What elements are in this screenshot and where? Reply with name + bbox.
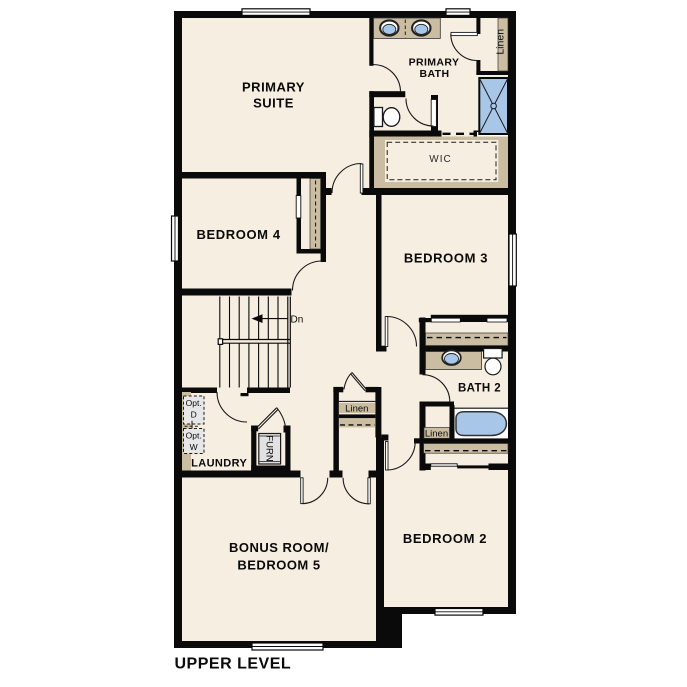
svg-text:FURN: FURN <box>264 435 275 462</box>
svg-text:LAUNDRY: LAUNDRY <box>191 457 247 469</box>
svg-text:Opt.: Opt. <box>186 398 202 408</box>
svg-text:PRIMARY: PRIMARY <box>409 56 460 68</box>
svg-text:BEDROOM 5: BEDROOM 5 <box>237 558 320 573</box>
svg-text:BEDROOM 4: BEDROOM 4 <box>197 227 281 242</box>
svg-text:BATH: BATH <box>420 68 450 80</box>
svg-text:WIC: WIC <box>429 154 451 165</box>
svg-text:D: D <box>191 410 197 420</box>
svg-text:Dn: Dn <box>291 315 304 326</box>
svg-text:W: W <box>190 442 198 452</box>
svg-text:SUITE: SUITE <box>253 96 294 111</box>
svg-text:Linen: Linen <box>494 29 506 55</box>
svg-text:Opt.: Opt. <box>186 431 202 441</box>
svg-text:BATH 2: BATH 2 <box>458 383 501 395</box>
svg-text:BEDROOM 3: BEDROOM 3 <box>404 251 488 266</box>
svg-text:Linen: Linen <box>425 428 448 439</box>
svg-text:BEDROOM 2: BEDROOM 2 <box>403 531 487 546</box>
svg-text:Linen: Linen <box>345 403 368 414</box>
svg-text:UPPER LEVEL: UPPER LEVEL <box>175 656 292 673</box>
svg-text:PRIMARY: PRIMARY <box>242 80 305 95</box>
svg-text:BONUS ROOM/: BONUS ROOM/ <box>229 540 329 555</box>
